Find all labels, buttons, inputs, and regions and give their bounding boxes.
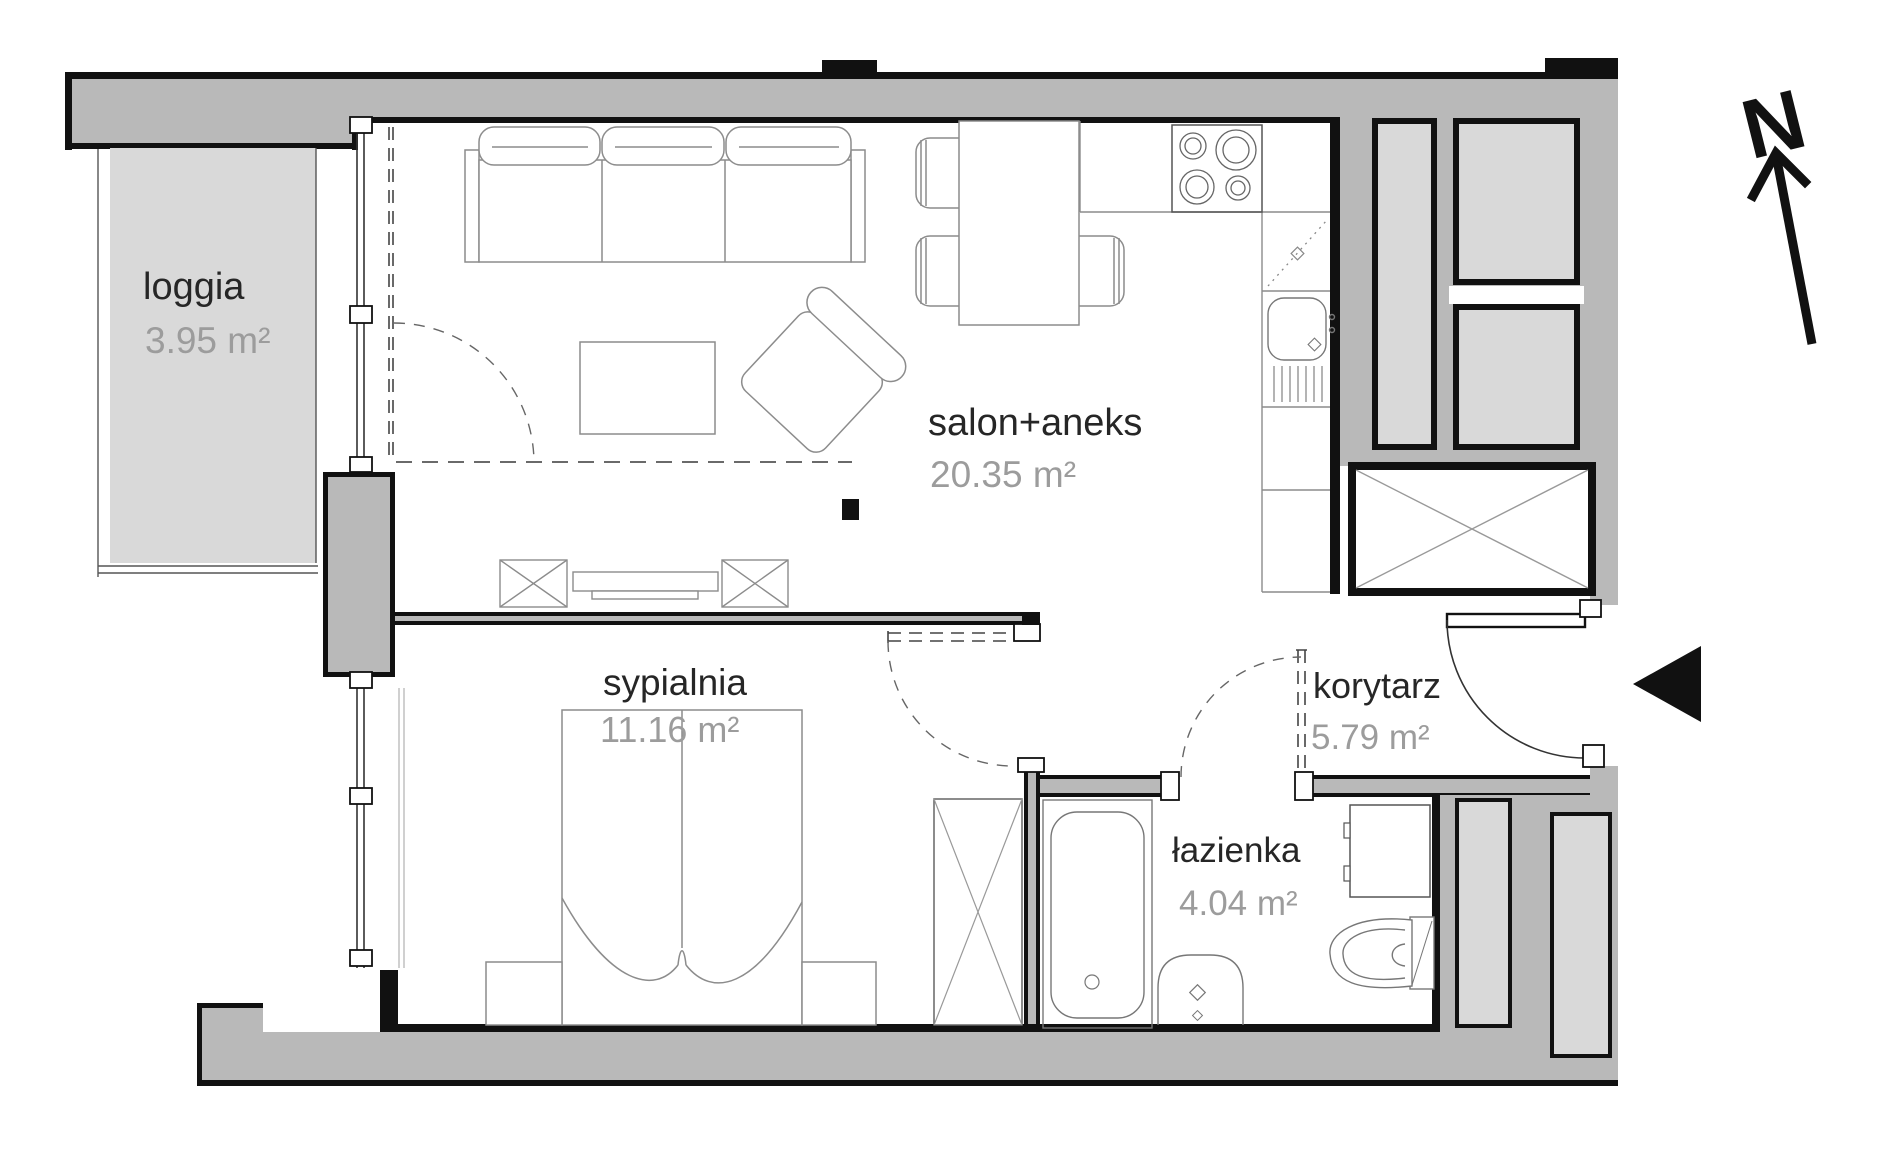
tv-unit [500,560,788,607]
room-area-korytarz: 5.79 m² [1311,720,1430,755]
bathroom-door [1181,650,1307,777]
bathtub [1043,800,1152,1028]
nightstand-left [486,962,562,1025]
bedroom-wardrobe [934,799,1022,1025]
wall-end-cap [1022,612,1040,625]
bedroom-door [888,631,1014,766]
washing-machine [1344,805,1430,897]
coffee-table [580,342,715,434]
room-area-lazienka: 4.04 m² [1179,886,1298,921]
kitchen-sink [1268,298,1335,402]
room-label-korytarz: korytarz [1313,668,1441,704]
bedroom-window [357,688,404,968]
nightstand-right [802,962,876,1025]
room-label-loggia: loggia [143,268,244,306]
room-label-sypialnia: sypialnia [603,664,747,701]
loggia-railing [98,148,318,577]
room-area-salon: 20.35 m² [930,456,1076,493]
toilet [1330,917,1434,989]
bed [562,710,802,1025]
armchair [731,281,912,462]
dishwasher [1268,220,1327,286]
room-label-lazienka: łazienka [1172,833,1300,868]
dining-set [916,121,1124,325]
room-area-loggia: 3.95 m² [145,322,270,359]
room-area-sypialnia: 11.16 m² [600,712,739,748]
north-arrow-icon: N [1733,71,1815,344]
kitchen-counter [1080,121,1330,592]
salon-window [357,123,364,460]
floor-plan: N loggia 3.95 m² salon+aneks 20.35 m² sy… [0,0,1900,1152]
room-label-salon: salon+aneks [928,404,1142,442]
shaft-box [1352,466,1592,592]
sofa [465,127,865,262]
washbasin [1158,955,1243,1025]
entrance-door [1447,614,1585,758]
entrance-arrow-icon [1633,646,1701,722]
stove [1172,125,1262,212]
